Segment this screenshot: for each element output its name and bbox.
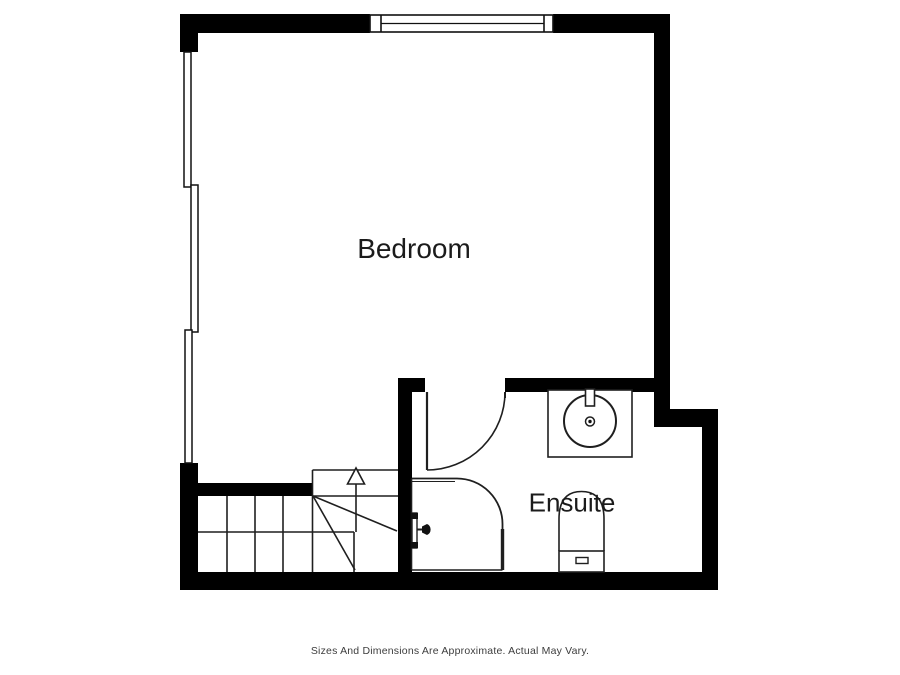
disclaimer-text: Sizes And Dimensions Are Approximate. Ac… [311,645,589,657]
left-window-icon [184,52,198,463]
wall-top-left [180,14,370,33]
ensuite-label: Ensuite [529,488,616,519]
wall-right-ensuite [702,409,718,590]
wall-ensuite-left [398,378,412,574]
top-window-icon [370,15,553,32]
wall-top-right [553,14,670,33]
stair-winder-line [313,496,397,531]
stair-winder-line [313,496,355,570]
shower-valve-icon [411,513,431,548]
stairs-up-arrow-icon [348,468,365,532]
shower-rail-cap-top [411,513,418,519]
wall-stairs-top [198,483,313,496]
wall-left-upper-post [180,14,198,52]
shower-enclosure-icon [411,478,503,570]
wall-right-bedroom [654,14,670,427]
sink-drain-inner [588,420,591,423]
door-swing-arc [427,392,505,470]
left-window-section-3 [185,330,192,463]
shower-head [422,524,431,535]
walls [180,14,718,590]
wall-left-lower [180,463,198,590]
bedroom-label: Bedroom [357,233,471,265]
floorplan-drawing [0,0,900,675]
shower-rail-cap-bottom [411,542,418,548]
toilet-flush-button [576,558,588,564]
ensuite-door-icon [427,392,505,470]
left-window-section-1 [184,52,191,187]
left-window-section-2 [191,185,198,332]
sink-tap [586,389,595,406]
floorplan-page: Bedroom Ensuite Sizes And Dimensions Are… [0,0,900,675]
sink-icon [548,389,632,457]
wall-bottom [180,572,718,590]
shower-outline [412,478,503,570]
